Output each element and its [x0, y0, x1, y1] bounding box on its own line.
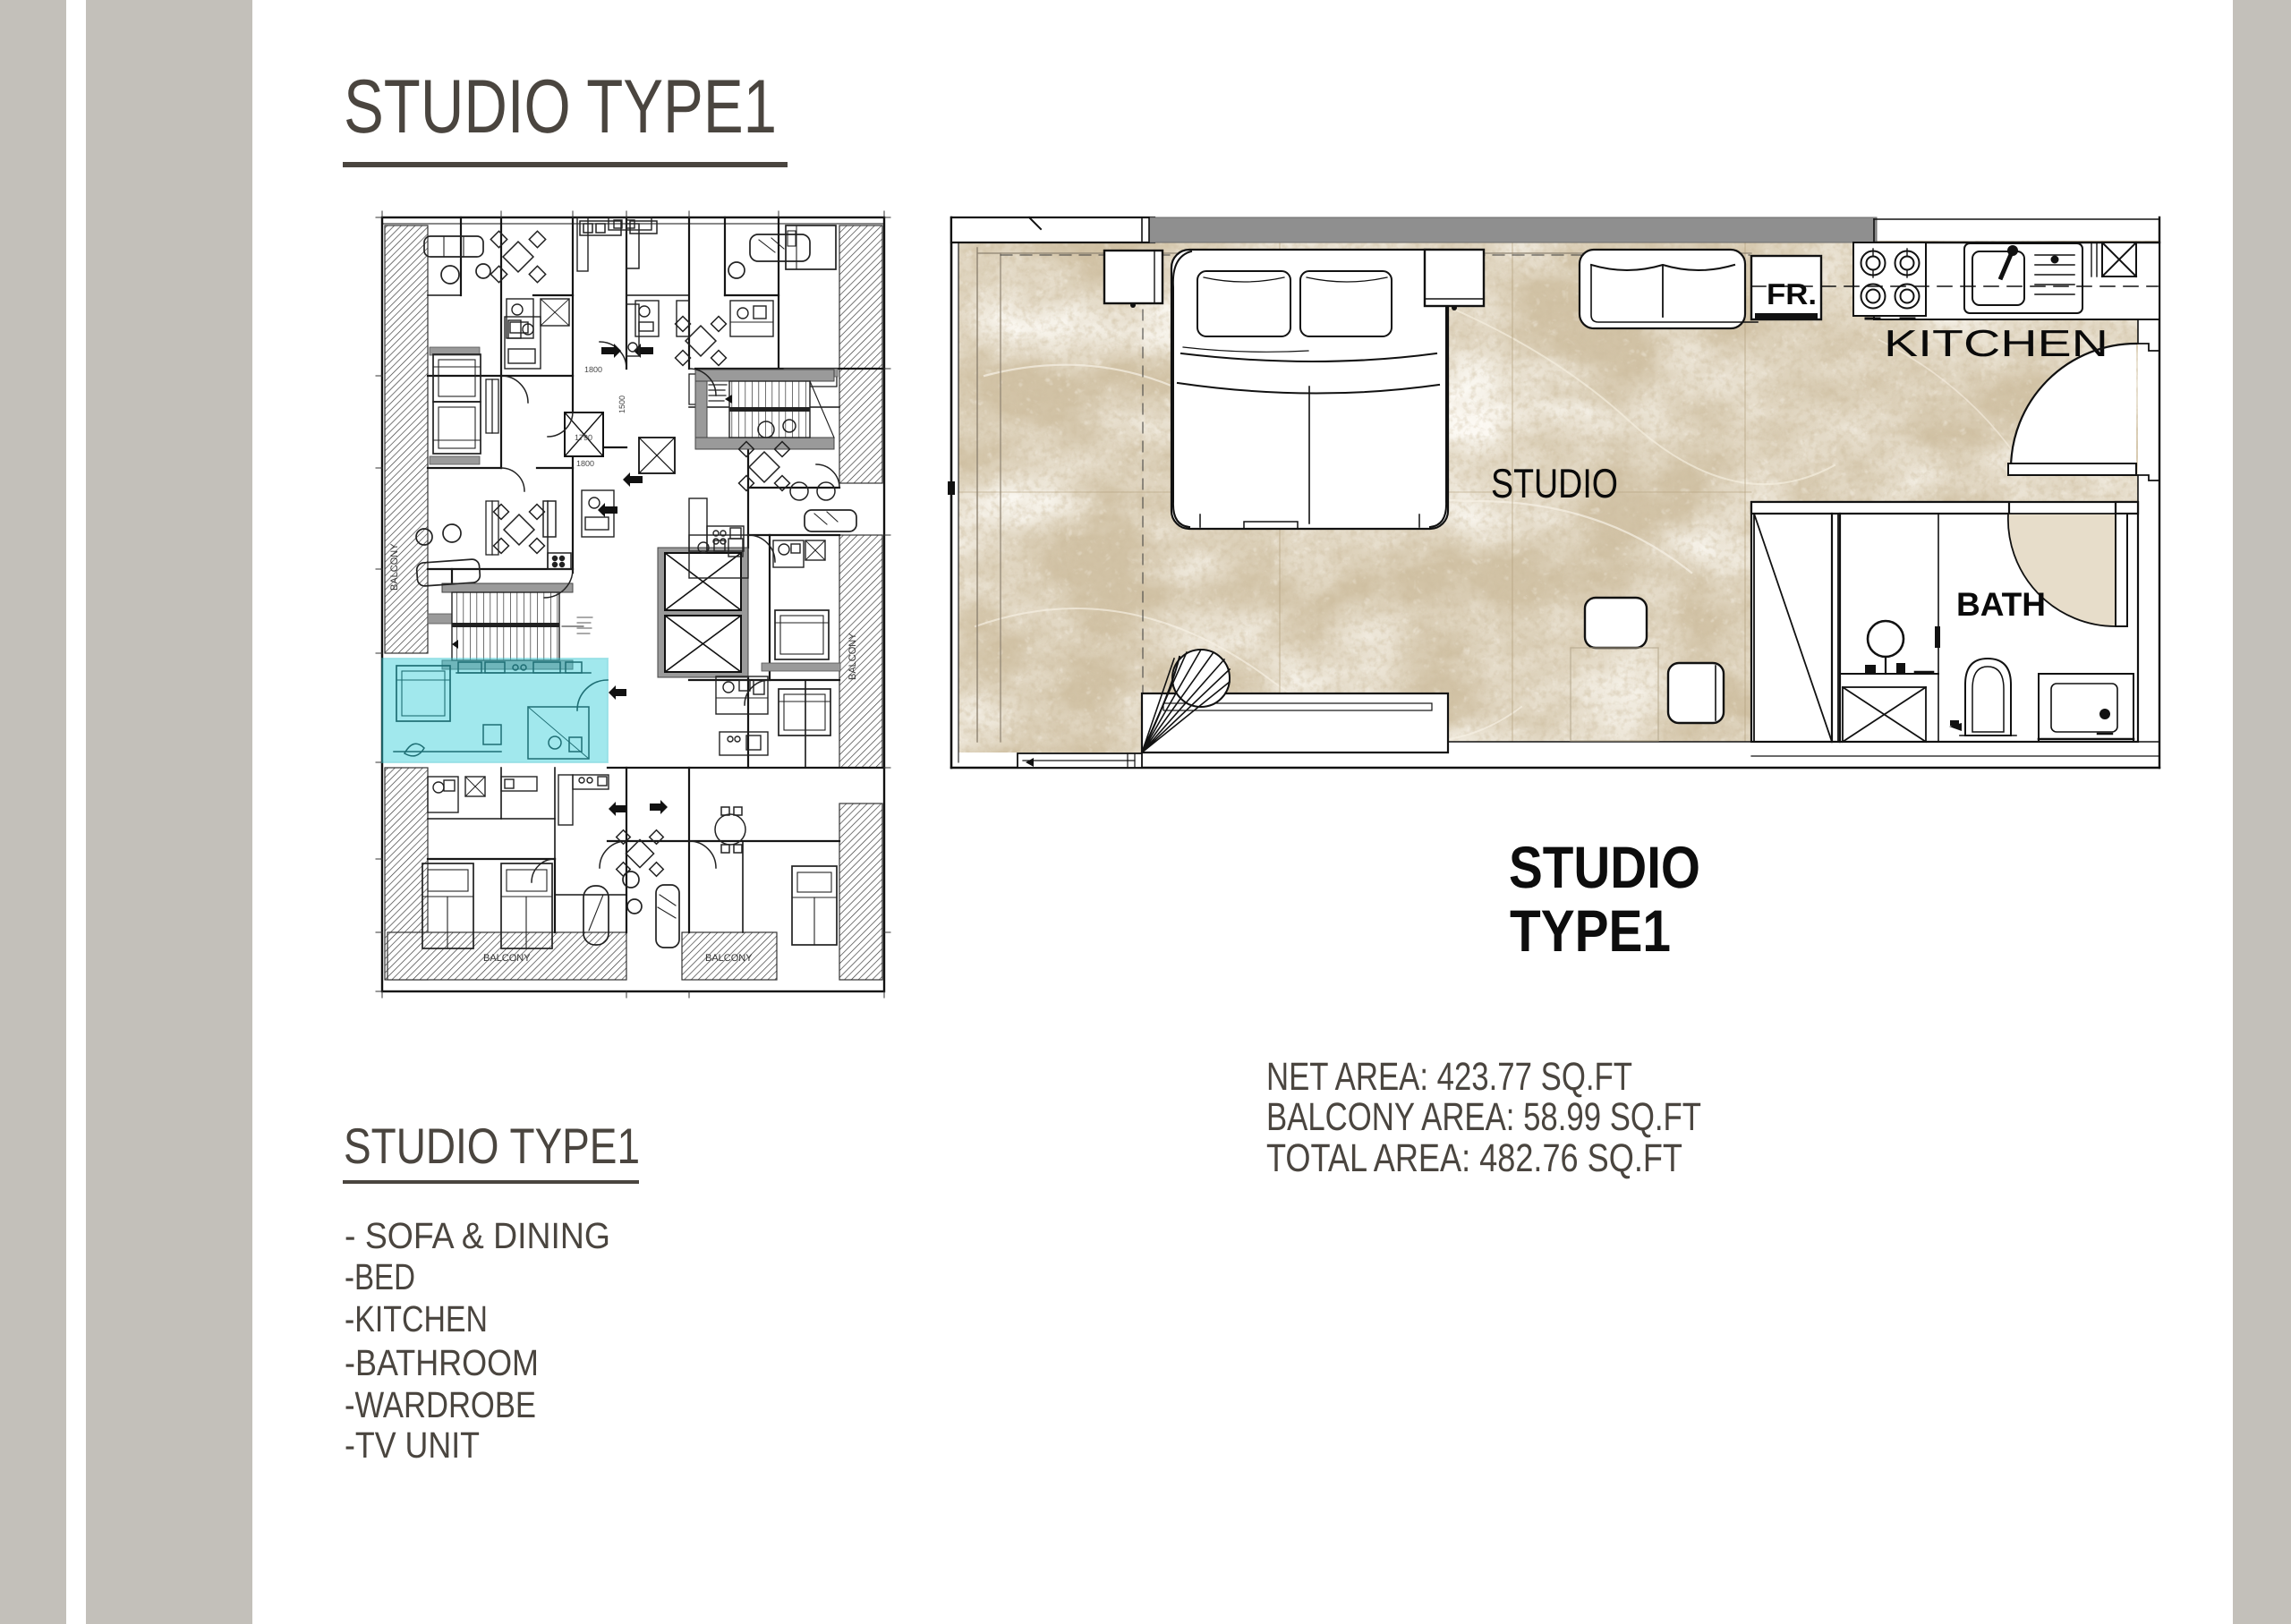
svg-text:STUDIO TYPE1: STUDIO TYPE1: [344, 1118, 640, 1174]
svg-text:TOTAL AREA: 482.76 SQ.FT: TOTAL AREA: 482.76 SQ.FT: [1266, 1136, 1682, 1180]
svg-text:BALCONY: BALCONY: [705, 953, 753, 964]
svg-text:KITCHEN: KITCHEN: [1884, 322, 2108, 364]
svg-text:BALCONY: BALCONY: [483, 953, 531, 964]
svg-text:STUDIO: STUDIO: [1509, 834, 1700, 900]
svg-text:BATH: BATH: [1956, 586, 2046, 623]
svg-text:BALCONY: BALCONY: [389, 543, 400, 591]
svg-text:NET AREA: 423.77 SQ.FT: NET AREA: 423.77 SQ.FT: [1266, 1055, 1632, 1099]
svg-text:-WARDROBE: -WARDROBE: [345, 1384, 536, 1425]
svg-text:TYPE1: TYPE1: [1510, 897, 1671, 964]
svg-text:BALCONY AREA: 58.99 SQ.FT: BALCONY AREA: 58.99 SQ.FT: [1266, 1095, 1701, 1139]
svg-text:-KITCHEN: -KITCHEN: [345, 1298, 488, 1339]
svg-text:1500: 1500: [617, 395, 626, 413]
svg-text:-TV UNIT: -TV UNIT: [345, 1424, 480, 1466]
svg-text:1800: 1800: [584, 365, 602, 374]
svg-text:1790: 1790: [575, 433, 592, 442]
svg-text:-BATHROOM: -BATHROOM: [345, 1342, 539, 1383]
svg-text:- SOFA & DINING: - SOFA & DINING: [345, 1215, 610, 1256]
svg-text:STUDIO: STUDIO: [1491, 460, 1618, 506]
svg-text:-BED: -BED: [345, 1256, 415, 1297]
svg-text:1800: 1800: [576, 459, 594, 468]
svg-text:FR.: FR.: [1767, 277, 1817, 310]
svg-text:BALCONY: BALCONY: [847, 633, 858, 680]
svg-text:STUDIO TYPE1: STUDIO TYPE1: [344, 64, 777, 149]
